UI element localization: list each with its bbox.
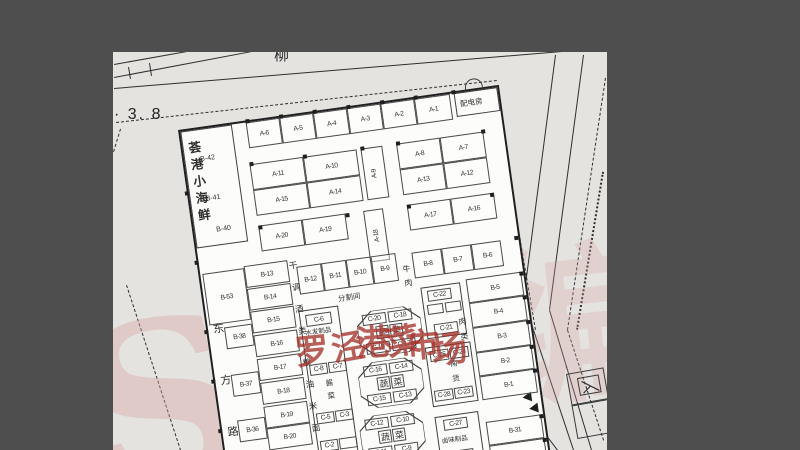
door-tick	[533, 368, 538, 373]
stall-label: B-14	[263, 292, 276, 301]
stall-label: A-2	[394, 110, 404, 118]
stall-label: A-7	[458, 143, 468, 151]
stall-label: B-11	[329, 271, 342, 280]
stall-label: B-2	[500, 357, 510, 365]
stall-label: A-5	[293, 124, 303, 132]
vegetable-island-octagon	[358, 409, 428, 450]
stall-label: B-6	[482, 251, 492, 259]
door-tick	[313, 110, 318, 115]
door-tick	[514, 236, 519, 241]
door-tick	[481, 129, 486, 134]
stall-b-36: B-36	[237, 417, 268, 443]
stall-a-16: A-16	[450, 193, 497, 225]
stall-label: B-53	[220, 293, 233, 302]
door-tick	[194, 260, 199, 265]
stall-label: B-20	[283, 432, 296, 441]
stall-a-1: A-1	[414, 94, 453, 125]
road-line	[549, 55, 584, 310]
stall-b-37: B-37	[231, 371, 262, 397]
stall-label: A-12	[460, 169, 473, 178]
stall-label: A-16	[467, 204, 480, 213]
map-world: S编 · 3. 8 柳 A-6A-5A-4A-3A-2A-1A-11A-10A-…	[113, 52, 607, 450]
market-building: A-6A-5A-4A-3A-2A-1A-11A-10A-9A-8A-7A-15A…	[178, 85, 556, 450]
stall-a-3: A-3	[347, 104, 384, 134]
stall-label: A-20	[275, 231, 288, 240]
stall-label: B-7	[453, 255, 463, 263]
door-tick	[204, 330, 209, 335]
road-line	[114, 52, 562, 89]
door-tick	[407, 204, 412, 209]
door-tick	[279, 114, 284, 119]
road-line	[523, 55, 556, 300]
stall-b-6: B-6	[471, 240, 504, 270]
stall-label: B-16	[270, 339, 283, 348]
door-tick	[539, 414, 544, 419]
zone-label: 牛肉	[402, 265, 414, 294]
stall-a-9: A-9	[360, 146, 389, 201]
elevation-marker: · 3. 8	[114, 106, 162, 124]
stall-b-53: B-53	[202, 268, 251, 325]
stall-label: A-6	[259, 129, 269, 137]
door-tick	[526, 320, 531, 325]
stall-b-20: B-20	[266, 422, 313, 450]
stall-label: A-15	[275, 195, 288, 204]
stall-b-11: B-11	[321, 260, 350, 291]
door-tick	[522, 295, 527, 300]
stall-b-10: B-10	[346, 256, 375, 287]
stall-label: B-8	[423, 259, 433, 267]
door-tick	[211, 379, 216, 384]
stall-a-13: A-13	[400, 163, 447, 195]
road-line	[126, 285, 181, 450]
stall-label: B-13	[260, 270, 273, 279]
door-tick	[249, 162, 254, 167]
stall-a-12: A-12	[443, 157, 490, 189]
stall-label: B-1	[504, 380, 514, 388]
door-tick	[451, 90, 456, 95]
stall-label: B-31	[508, 426, 521, 435]
door-tick	[258, 225, 263, 230]
stall-b-7: B-7	[441, 244, 474, 274]
stall-label: A-18	[372, 229, 381, 242]
door-tick	[185, 191, 190, 196]
door-tick	[245, 119, 250, 124]
stall-a-19: A-19	[302, 214, 349, 246]
zone-label: 分割间	[338, 292, 361, 303]
east-entrance-arrow	[529, 403, 539, 414]
stall-label: B-5	[490, 283, 500, 291]
stall-a-4: A-4	[313, 108, 350, 138]
stall-label: A-9	[371, 168, 379, 178]
stall-label: B-38	[233, 332, 246, 341]
parking-area	[566, 367, 607, 443]
stall-a-6: A-6	[246, 118, 283, 148]
stall-a-2: A-2	[380, 99, 417, 129]
door-tick	[380, 100, 385, 105]
door-tick	[346, 105, 351, 110]
road-line	[567, 78, 606, 330]
stall-b-8: B-8	[411, 249, 444, 279]
octagon-outline	[358, 409, 428, 450]
stall-label: B-15	[267, 315, 280, 324]
road-line	[113, 129, 121, 152]
stall-label: B-18	[277, 387, 290, 396]
door-tick	[218, 429, 223, 434]
door-tick	[529, 345, 534, 350]
stall-label: A-1	[429, 105, 439, 113]
stall-label: A-8	[415, 150, 425, 158]
door-tick	[414, 95, 419, 100]
stall-label: B-17	[273, 363, 286, 372]
stall-label: B-4	[493, 308, 503, 316]
door-tick	[303, 154, 308, 159]
stall-b-9: B-9	[370, 253, 399, 284]
octagon-outline	[355, 304, 425, 358]
stall-label: A-19	[319, 225, 332, 234]
door-tick	[542, 438, 547, 443]
door-tick	[490, 193, 495, 198]
stall-label: B-3	[497, 332, 507, 340]
road-line	[576, 172, 604, 330]
stall-label: B-37	[239, 380, 252, 389]
stall-label: A-11	[272, 169, 285, 178]
stall-label: B-9	[380, 264, 390, 272]
stall-a-5: A-5	[279, 113, 316, 143]
door-tick	[519, 271, 524, 276]
stall-label: A-3	[360, 115, 370, 123]
stall-a-20: A-20	[258, 220, 305, 252]
stall-label: B-12	[304, 275, 317, 284]
parking-symbol-box	[577, 374, 602, 396]
stall-label: A-10	[325, 162, 338, 171]
x-symbol-icon	[578, 375, 603, 397]
stall-label: B-36	[246, 425, 259, 434]
stall-label: B-19	[280, 410, 293, 419]
stall-label: A-4	[327, 119, 337, 127]
road-line	[114, 52, 243, 65]
vegetable-island-octagon	[356, 356, 426, 415]
vegetable-island-octagon	[355, 304, 425, 363]
stall-label: A-14	[329, 187, 342, 196]
door-tick	[396, 141, 401, 146]
stall-b-38: B-38	[224, 324, 255, 350]
stall-label: B-10	[353, 268, 366, 277]
octagon-outline	[356, 356, 426, 410]
drawing-paper: S编 · 3. 8 柳 A-6A-5A-4A-3A-2A-1A-11A-10A-…	[113, 52, 607, 450]
road-name-partial: 柳	[274, 52, 289, 65]
door-tick	[345, 213, 350, 218]
stall-label: A-13	[417, 175, 430, 184]
stall-label: A-17	[424, 210, 437, 219]
parking-rect	[572, 399, 607, 439]
door-tick	[360, 146, 365, 151]
stall-a-17: A-17	[407, 199, 454, 231]
screenshot-stage: S编 · 3. 8 柳 A-6A-5A-4A-3A-2A-1A-11A-10A-…	[0, 0, 800, 450]
road-line	[114, 52, 252, 78]
